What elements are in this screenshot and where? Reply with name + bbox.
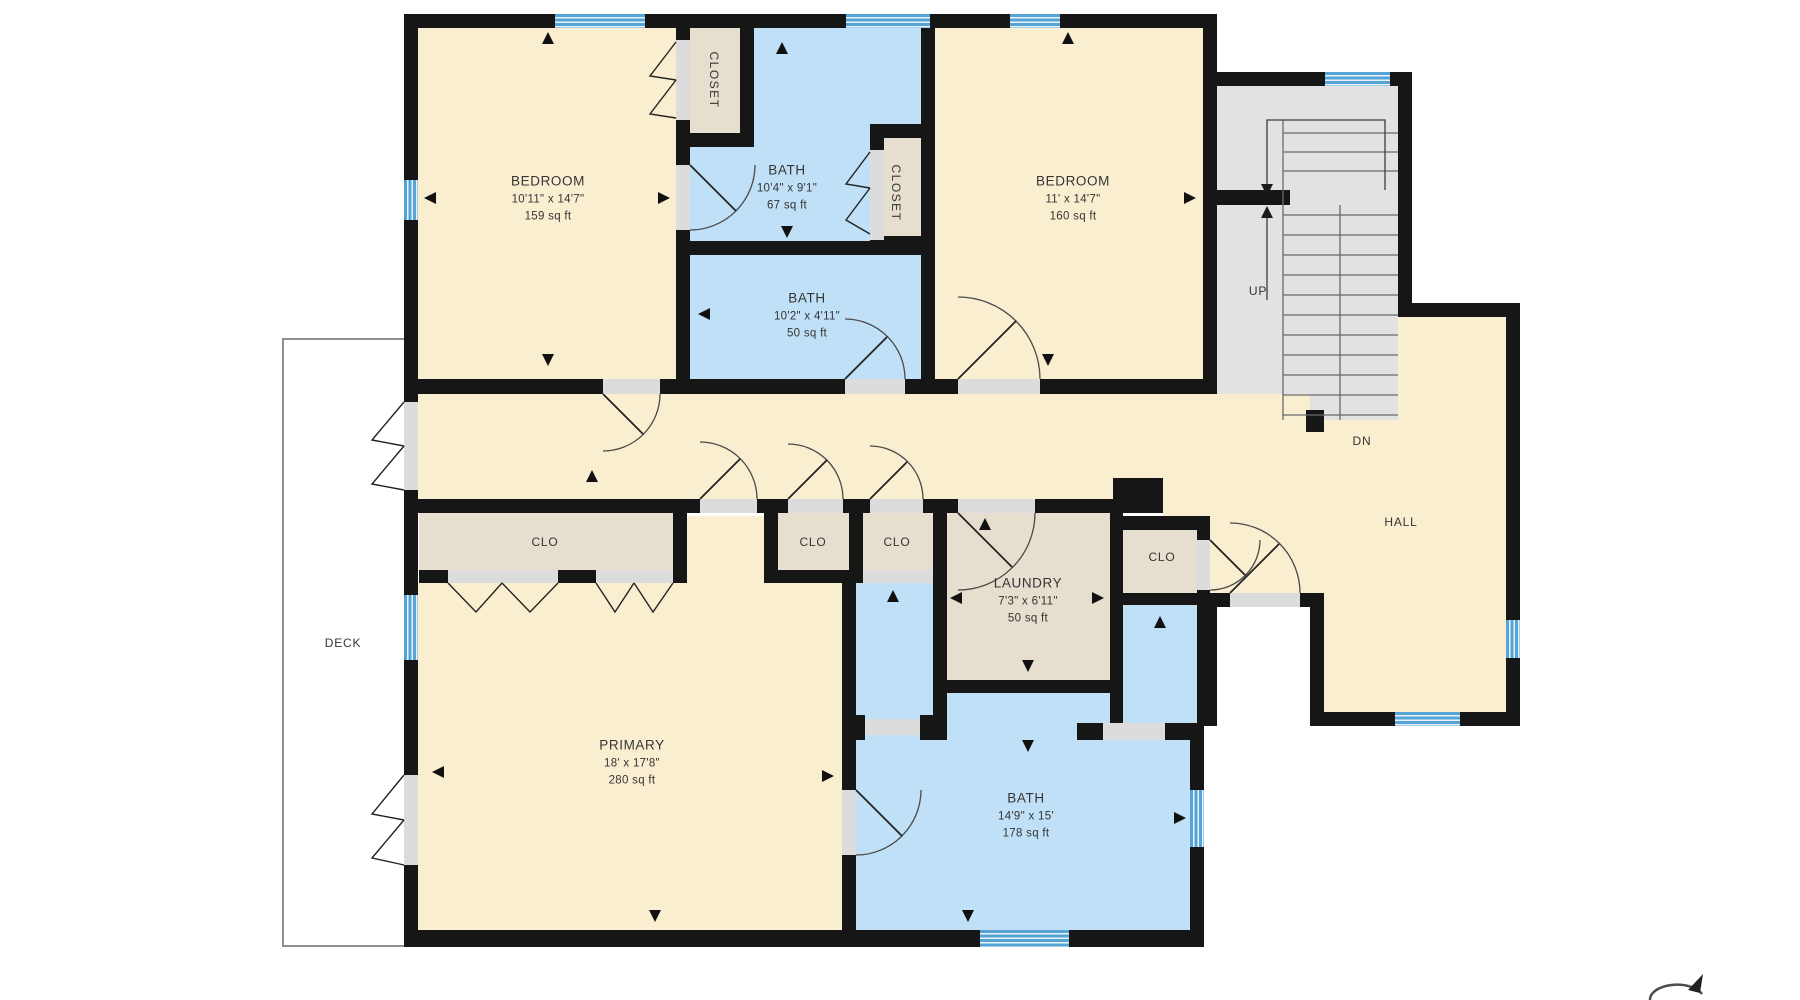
wall bbox=[764, 570, 863, 583]
room-name: BEDROOM bbox=[1036, 174, 1110, 189]
label-bath-2: BATH 10'2" x 4'11" 50 sq ft bbox=[774, 291, 840, 340]
door-opening bbox=[845, 379, 905, 394]
door-opening bbox=[448, 570, 558, 583]
room-area: 160 sq ft bbox=[1036, 211, 1110, 223]
water-closet bbox=[1217, 607, 1310, 712]
room-dims: 10'4" x 9'1" bbox=[757, 183, 817, 195]
wall bbox=[920, 715, 947, 740]
wall bbox=[1197, 593, 1217, 726]
label-clo-1: CLO bbox=[799, 535, 826, 549]
stair-newel-post bbox=[1306, 410, 1324, 432]
wall bbox=[740, 28, 754, 133]
door-opening bbox=[404, 775, 418, 865]
stair-landing-wall bbox=[1217, 190, 1290, 205]
room-name: BEDROOM bbox=[511, 174, 585, 189]
room-area: 67 sq ft bbox=[757, 200, 817, 212]
wall bbox=[676, 28, 690, 40]
room-dims: 10'2" x 4'11" bbox=[774, 311, 840, 323]
wall bbox=[1077, 723, 1103, 740]
label-up: UP bbox=[1249, 284, 1267, 298]
door-opening bbox=[788, 499, 843, 513]
label-primary: PRIMARY 18' x 17'8" 280 sq ft bbox=[599, 738, 664, 787]
wall bbox=[921, 28, 935, 394]
floor-plan: BEDROOM 10'11" x 14'7" 159 sq ft BATH 10… bbox=[0, 0, 1800, 1000]
room-dims: 10'11" x 14'7" bbox=[511, 194, 585, 206]
wall bbox=[1165, 723, 1204, 740]
wall bbox=[870, 124, 921, 138]
stairwell bbox=[1217, 86, 1398, 420]
room-name: BATH bbox=[774, 291, 840, 306]
window bbox=[404, 180, 418, 220]
label-deck: DECK bbox=[325, 636, 362, 650]
door-opening bbox=[958, 499, 1035, 513]
label-clo-primary: CLO bbox=[531, 535, 558, 549]
room-dims: 11' x 14'7" bbox=[1036, 194, 1110, 206]
door-opening bbox=[676, 40, 690, 120]
door-opening bbox=[870, 499, 923, 513]
corridor bbox=[418, 394, 1203, 499]
wall bbox=[676, 133, 690, 165]
wall bbox=[1398, 72, 1412, 317]
label-clo-hall: CLO bbox=[1148, 550, 1175, 564]
room-name: LAUNDRY bbox=[994, 576, 1062, 591]
door-opening bbox=[842, 790, 856, 855]
window bbox=[404, 595, 418, 660]
door-opening bbox=[863, 570, 933, 583]
door-opening bbox=[1230, 593, 1300, 607]
door-opening bbox=[865, 719, 920, 735]
label-hall: HALL bbox=[1384, 515, 1417, 529]
wall bbox=[1398, 303, 1520, 317]
logo-mark bbox=[1650, 974, 1703, 1000]
door-opening bbox=[596, 570, 673, 583]
wall bbox=[933, 680, 1123, 693]
hall-west bbox=[1203, 394, 1310, 607]
room-name: BATH bbox=[998, 791, 1054, 806]
room-area: 50 sq ft bbox=[994, 613, 1062, 625]
door-opening bbox=[958, 379, 1040, 394]
wall bbox=[1110, 513, 1123, 740]
wall bbox=[1113, 478, 1163, 513]
label-bedroom-1: BEDROOM 10'11" x 14'7" 159 sq ft bbox=[511, 174, 585, 223]
door-opening bbox=[603, 379, 660, 394]
wall bbox=[404, 930, 1204, 947]
room-area: 50 sq ft bbox=[774, 328, 840, 340]
wall bbox=[404, 14, 1217, 28]
wall bbox=[404, 379, 1217, 394]
label-bedroom-2: BEDROOM 11' x 14'7" 160 sq ft bbox=[1036, 174, 1110, 223]
wall bbox=[1506, 303, 1520, 726]
window bbox=[1506, 620, 1520, 658]
door-opening bbox=[1103, 723, 1165, 740]
wall bbox=[1110, 516, 1210, 530]
door-opening bbox=[700, 499, 757, 513]
door-opening bbox=[870, 150, 884, 240]
window bbox=[1190, 790, 1204, 847]
window bbox=[555, 14, 645, 28]
label-bath-1: BATH 10'4" x 9'1" 67 sq ft bbox=[757, 163, 817, 212]
door-opening bbox=[404, 402, 418, 490]
wall bbox=[404, 499, 1163, 513]
window bbox=[846, 14, 930, 28]
window bbox=[980, 930, 1069, 947]
room-dims: 14'9" x 15' bbox=[998, 811, 1054, 823]
door-opening bbox=[1197, 540, 1210, 590]
wall bbox=[676, 120, 690, 133]
wall bbox=[1197, 530, 1210, 540]
wall bbox=[1110, 593, 1210, 605]
room-area: 178 sq ft bbox=[998, 828, 1054, 840]
room-area: 159 sq ft bbox=[511, 211, 585, 223]
room-name: PRIMARY bbox=[599, 738, 664, 753]
wall bbox=[870, 138, 884, 150]
wall bbox=[676, 230, 690, 379]
label-laundry: LAUNDRY 7'3" x 6'11" 50 sq ft bbox=[994, 576, 1062, 625]
label-closet-b: CLOSET bbox=[889, 164, 903, 221]
room-dims: 7'3" x 6'11" bbox=[994, 596, 1062, 608]
wall bbox=[842, 583, 856, 930]
wall bbox=[1203, 14, 1217, 394]
wall bbox=[1310, 593, 1324, 726]
room-dims: 18' x 17'8" bbox=[599, 758, 664, 770]
window bbox=[1395, 712, 1460, 726]
label-dn: DN bbox=[1353, 434, 1372, 448]
window bbox=[1325, 72, 1390, 86]
window bbox=[1010, 14, 1060, 28]
label-clo-2: CLO bbox=[883, 535, 910, 549]
label-closet-a: CLOSET bbox=[707, 51, 721, 108]
room-name: BATH bbox=[757, 163, 817, 178]
label-bath-3: BATH 14'9" x 15' 178 sq ft bbox=[998, 791, 1054, 840]
door-opening bbox=[676, 165, 690, 230]
primary-entry bbox=[687, 516, 764, 583]
room-area: 280 sq ft bbox=[599, 775, 664, 787]
